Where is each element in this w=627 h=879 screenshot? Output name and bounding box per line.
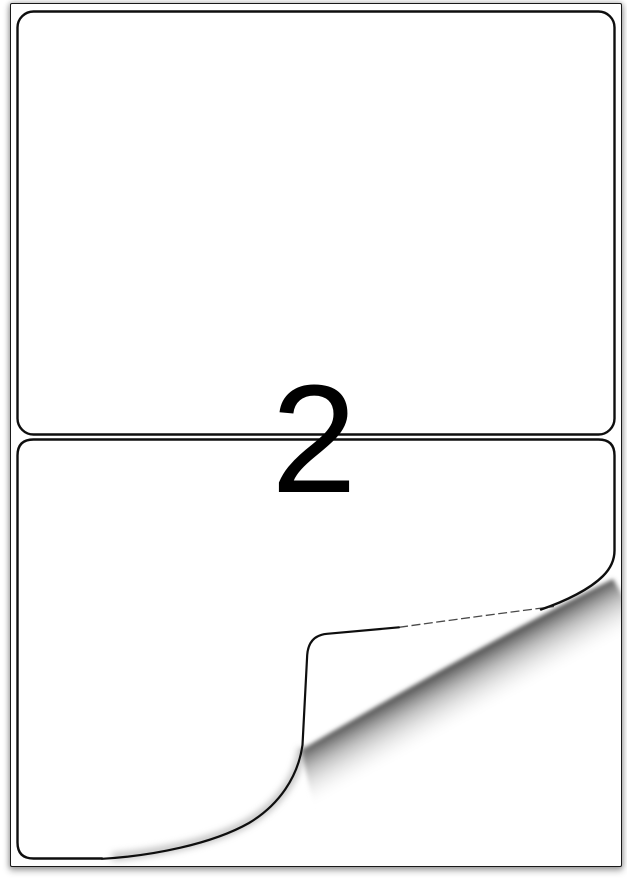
label-sheet-product-image: 2 (0, 0, 627, 879)
label-count-text: 2 (271, 362, 357, 516)
